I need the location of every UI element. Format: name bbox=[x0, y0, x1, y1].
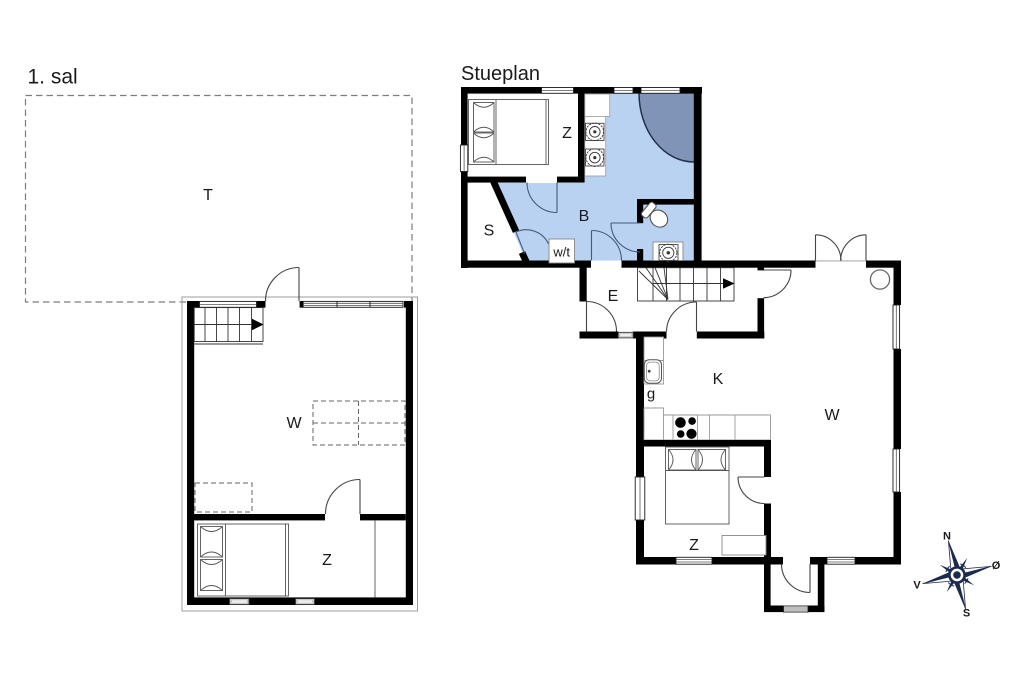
svg-text:Ø: Ø bbox=[992, 560, 1001, 572]
svg-text:Z: Z bbox=[322, 552, 332, 569]
svg-text:Z: Z bbox=[689, 537, 699, 554]
svg-text:K: K bbox=[713, 371, 724, 388]
svg-text:N: N bbox=[943, 531, 951, 543]
svg-text:S: S bbox=[484, 223, 495, 240]
svg-text:S: S bbox=[963, 608, 970, 620]
svg-text:E: E bbox=[608, 288, 619, 305]
svg-text:1. sal: 1. sal bbox=[28, 66, 78, 89]
svg-text:V: V bbox=[913, 580, 921, 592]
svg-text:Z: Z bbox=[562, 125, 572, 142]
svg-text:B: B bbox=[579, 208, 590, 225]
svg-text:Stueplan: Stueplan bbox=[461, 63, 540, 85]
svg-text:g: g bbox=[647, 386, 655, 403]
svg-text:W: W bbox=[824, 407, 840, 424]
svg-text:T: T bbox=[203, 187, 213, 204]
svg-text:w/t: w/t bbox=[552, 245, 570, 260]
svg-text:W: W bbox=[286, 415, 302, 432]
